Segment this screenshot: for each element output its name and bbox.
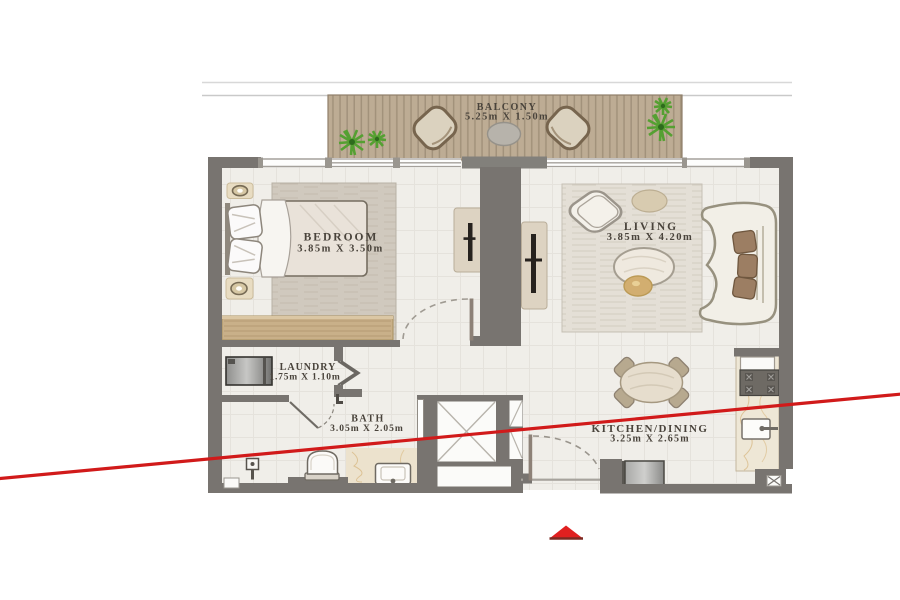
svg-text:3.25m X 2.65m: 3.25m X 2.65m	[610, 434, 689, 445]
svg-text:3.85m X 4.20m: 3.85m X 4.20m	[607, 232, 694, 243]
svg-text:BEDROOM: BEDROOM	[304, 232, 379, 244]
svg-text:3.85m X 3.50m: 3.85m X 3.50m	[297, 244, 384, 255]
svg-text:BATH: BATH	[351, 414, 385, 425]
svg-text:3.05m X 2.05m: 3.05m X 2.05m	[330, 424, 404, 434]
svg-text:LAUNDRY: LAUNDRY	[280, 362, 337, 373]
svg-text:1.75m X 1.10m: 1.75m X 1.10m	[269, 373, 340, 383]
svg-text:5.25m X 1.50m: 5.25m X 1.50m	[465, 112, 549, 123]
